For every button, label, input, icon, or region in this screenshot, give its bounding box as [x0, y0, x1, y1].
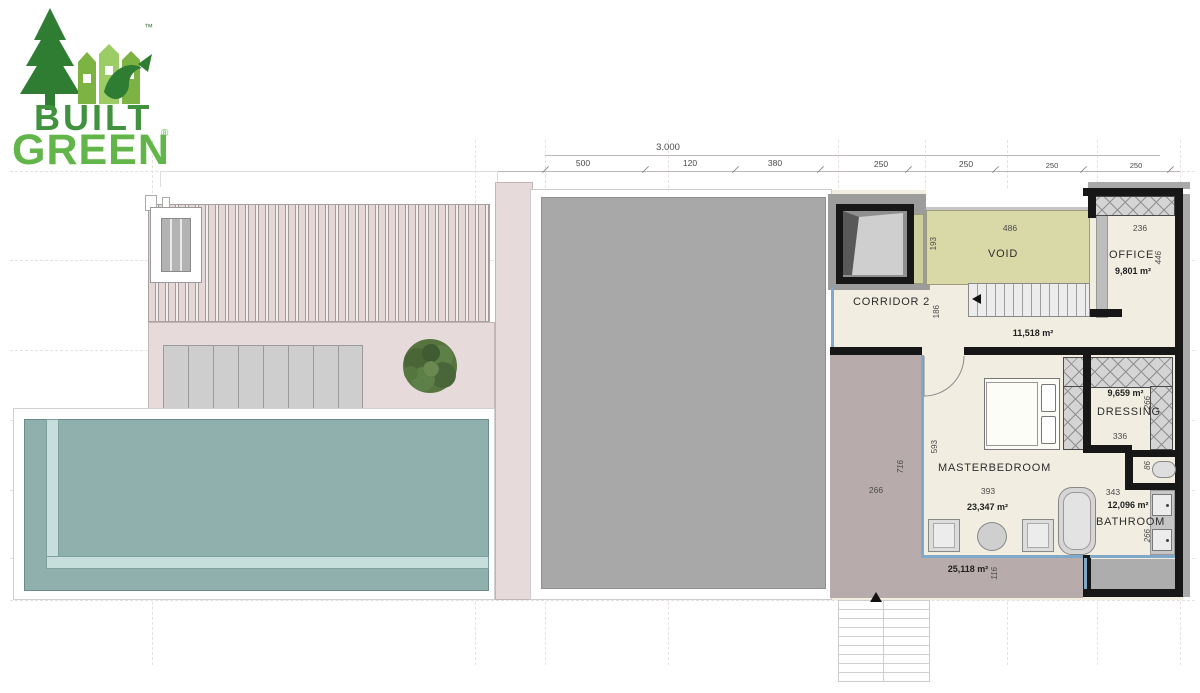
area-bathroom: 12,096 m²	[1099, 500, 1157, 510]
wall	[964, 347, 1183, 355]
dim-office-width: 236	[1120, 223, 1160, 233]
logo-fish-tail-icon	[138, 54, 152, 72]
dim-bathroom-height: 266	[1143, 529, 1152, 542]
glass-wall	[921, 555, 1083, 558]
glass-wall	[1084, 558, 1087, 589]
pool-ledge-left	[46, 419, 59, 569]
dim-office-height: 446	[1154, 251, 1163, 264]
dim-corridor-height: 186	[932, 305, 941, 318]
tree-icon	[395, 333, 465, 403]
exterior-stairs-divider	[883, 600, 884, 682]
room-label-office: OFFICE	[1109, 249, 1154, 261]
wardrobe-office	[1091, 196, 1175, 216]
room-label-void: VOID	[988, 248, 1018, 260]
bed-pillow	[1041, 384, 1056, 412]
dim-void-height: 193	[929, 237, 938, 250]
room-label-masterbedroom: MASTERBEDROOM	[938, 462, 1051, 474]
pool-ledge-bottom	[46, 556, 489, 569]
dim-dressing-width: 336	[1100, 431, 1140, 441]
dim-mbr-height: 593	[930, 440, 939, 453]
wall	[1088, 188, 1096, 218]
chair-seat	[933, 523, 955, 548]
dim-line	[545, 155, 1160, 156]
chair-seat	[1027, 523, 1049, 548]
built-green-logo: ™ BUILT GREEN ®	[8, 4, 178, 166]
area-office: 9,801 m²	[1104, 266, 1162, 276]
room-label-corridor2: CORRIDOR 2	[853, 296, 930, 308]
stair-direction-arrow	[972, 294, 981, 304]
sink	[1152, 529, 1172, 551]
dim-seg: 500	[563, 158, 603, 168]
wall	[1090, 309, 1122, 317]
wardrobe-dressing-top	[1063, 357, 1173, 388]
round-table	[977, 522, 1007, 551]
dim-void-width: 486	[990, 223, 1030, 233]
glass-wall	[921, 355, 924, 558]
glass-wall	[831, 287, 834, 347]
floor-plan-sheet: ™ BUILT GREEN ® 3.000 500 120 380 250 25…	[0, 0, 1200, 693]
dim-bathroom-width: 343	[1095, 487, 1131, 497]
room-label-bathroom: BATHROOM	[1096, 516, 1165, 528]
sink-drain	[1166, 504, 1169, 507]
terrace-mauve-left	[830, 355, 922, 598]
dim-line-faint	[160, 171, 498, 172]
wardrobe-dressing-right	[1150, 386, 1173, 450]
dim-line	[488, 171, 1180, 172]
grid-line	[10, 600, 1195, 601]
stairs-interior	[968, 283, 1090, 317]
roof-edge-right	[1183, 194, 1190, 597]
dim-seg: 120	[670, 158, 710, 168]
logo-registered: ®	[161, 128, 169, 139]
wall	[1132, 450, 1183, 457]
logo-green-text: GREEN	[12, 126, 170, 166]
wall	[1175, 188, 1183, 597]
room-label-dressing: DRESSING	[1097, 406, 1161, 418]
flat-roof-gray	[541, 197, 826, 589]
logo-tm: ™	[144, 22, 153, 32]
area-stair-hall: 11,518 m²	[1002, 328, 1064, 338]
dim-mbr-width: 393	[968, 486, 1008, 496]
logo-tree-icon	[20, 8, 80, 110]
elevator-car	[843, 211, 907, 277]
wall	[1125, 483, 1183, 490]
void-top-edge	[926, 190, 1090, 210]
balcony-gray	[1090, 559, 1175, 589]
dim-terrace-edge: 116	[990, 567, 999, 580]
dim-terrace-height: 716	[896, 460, 905, 473]
wall	[1083, 589, 1183, 597]
dim-seg: 250	[1032, 161, 1072, 170]
dim-overall: 3.000	[640, 142, 696, 153]
area-masterbedroom: 23,347 m²	[955, 502, 1020, 512]
skylight-glass	[161, 218, 191, 272]
wall	[830, 347, 922, 355]
toilet	[1152, 461, 1176, 478]
paved-strip	[163, 345, 363, 411]
dim-terrace-width: 266	[858, 485, 894, 495]
dim-seg: 250	[946, 159, 986, 169]
bathtub-inner	[1063, 492, 1091, 550]
dim-tick	[160, 171, 161, 187]
glass-wall	[1090, 555, 1175, 558]
exterior-stairs	[838, 600, 930, 682]
dim-seg: 250	[861, 159, 901, 169]
dim-seg: 250	[1116, 161, 1156, 170]
facade-strip	[495, 182, 533, 600]
wall	[1083, 355, 1091, 452]
dim-seg: 380	[755, 158, 795, 168]
stairs-up-arrow	[870, 592, 882, 602]
wall	[1083, 188, 1183, 196]
bed-mattress	[986, 382, 1038, 446]
dim-wc-height: 86	[1143, 461, 1152, 470]
sink-drain	[1166, 539, 1169, 542]
bed-pillow	[1041, 416, 1056, 444]
